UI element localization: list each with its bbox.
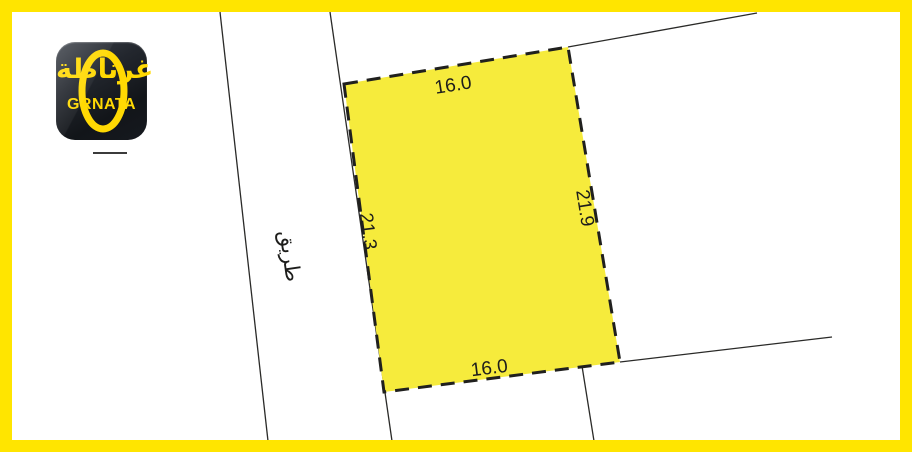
parcel-line-bottom-right bbox=[620, 337, 832, 362]
plot-map-canvas: 16.0 16.0 21.3 21.9 طريق غرناطة GRNATA bbox=[0, 0, 912, 452]
dimension-label-left: 21.3 bbox=[355, 212, 380, 251]
parcel-line-top-right bbox=[568, 13, 757, 47]
logo-underline bbox=[93, 152, 127, 154]
logo-latin-text: GRNATA bbox=[56, 97, 147, 113]
parcel-line-bottom bbox=[582, 366, 594, 441]
road-edge-line-left bbox=[220, 12, 268, 441]
dimension-label-bottom: 16.0 bbox=[470, 356, 509, 381]
grnata-logo: غرناطة GRNATA bbox=[56, 42, 147, 140]
road-label: طريق bbox=[274, 229, 305, 284]
logo-arabic-text: غرناطة bbox=[56, 56, 147, 83]
